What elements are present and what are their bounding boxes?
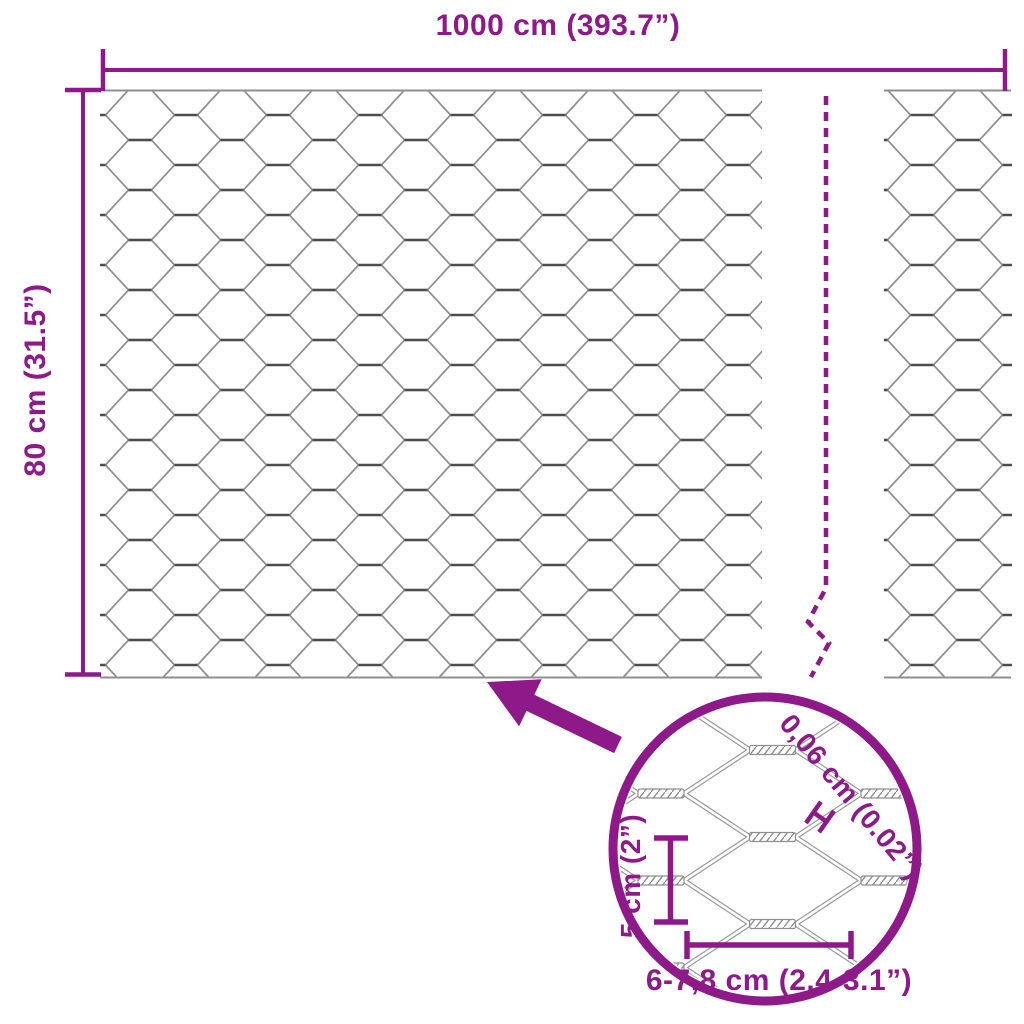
top-dimension-bracket <box>103 49 1005 91</box>
zoom-arrow <box>487 679 622 753</box>
top-dimension-label: 1000 cm (393.7”) <box>358 10 758 42</box>
side-dimension-label: 80 cm (31.5”) <box>20 230 52 530</box>
length-break-line <box>808 96 829 677</box>
diagram-graphics <box>0 0 1024 1024</box>
hex-mesh-continued <box>884 90 1012 678</box>
dimension-diagram: 1000 cm (393.7”) 80 cm (31.5”) 0,06 cm (… <box>0 0 1024 1024</box>
magnifier-circle <box>613 697 917 1001</box>
cell-height-label: 5 cm (2”) <box>615 791 647 961</box>
left-dimension-bracket <box>65 90 101 676</box>
cell-width-label: 6-7,8 cm (2.4-3.1”) <box>619 965 939 997</box>
hex-mesh-main <box>100 90 762 678</box>
cell-width-bar <box>687 931 851 959</box>
